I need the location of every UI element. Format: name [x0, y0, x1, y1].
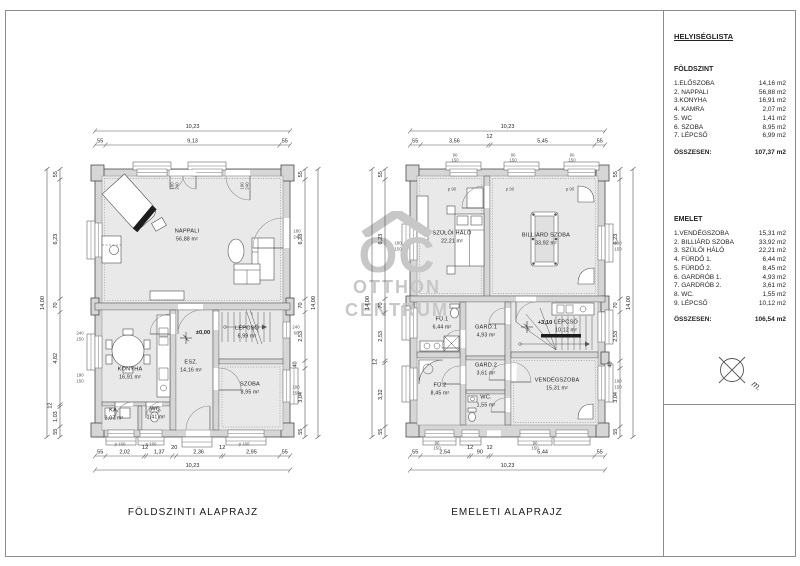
legend-row: 5. FÜRDŐ 2. 8,45 m2 [674, 265, 786, 274]
window-size-label: 240 [292, 325, 299, 330]
dimension-label: 14,00 [365, 296, 371, 310]
dimension-chain: 553,56125,4555 [408, 134, 607, 148]
dimension-label: 55 [412, 139, 418, 145]
window-size-label: 190 [76, 373, 83, 378]
legend-row-area: 33,92 m2 [759, 239, 786, 248]
level-marker-upper: +3,10 [538, 320, 553, 326]
dimension-chain: 559,1355 [93, 139, 292, 148]
legend-row-name: 1.VENDÉGSZOBA [674, 230, 729, 239]
window-size-label: 150 [394, 247, 401, 252]
legend-row-name: 8. WC. [674, 291, 694, 300]
room-label-szoba: SZOBA8,95 m² [240, 381, 260, 398]
room-label-esz: ESZ.14,16 m² [180, 359, 202, 376]
room-label-vendegszoba: VENDÉGSZOBA15,31 m² [535, 377, 580, 394]
legend-row-name: 5. FÜRDŐ 2. [674, 265, 712, 274]
legend-row: 6. GARDRÓB 1. 4,93 m2 [674, 274, 786, 283]
dimension-label: 55 [298, 429, 304, 435]
dimension-label: 55 [597, 139, 603, 145]
legend-row-area: 22,21 m2 [759, 247, 786, 256]
dimension-label: 4,82 [53, 353, 59, 364]
dimension-label: 3,32 [378, 389, 384, 400]
room-label-gardrob1: GARD.14,93 m² [475, 324, 497, 341]
window-size-label: 190 [394, 241, 401, 246]
legend-row-name: 6. SZOBA [674, 124, 703, 133]
legend-row-area: 6,44 m2 [763, 256, 787, 265]
dimension-label: 1,37 [154, 450, 165, 456]
legend-row: 4. KAMRA 2,07 m2 [674, 106, 786, 115]
legend-row: 9. LÉPCSŐ 10,12 m2 [674, 300, 786, 309]
room-label-konyha: KONYHA16,91 m² [118, 366, 143, 383]
dimension-total: 14,00 [365, 167, 375, 439]
parapet-label: p 160 [115, 442, 126, 447]
room-label-kamra: KA.2,07 m² [105, 407, 124, 424]
north-compass: m. [692, 336, 772, 401]
window-size-label: 150 [451, 158, 458, 163]
dimension-label: 10,23 [501, 124, 515, 130]
dimension-label: 6,23 [378, 234, 384, 245]
dimension-label: 10,23 [501, 463, 515, 469]
legend-row-area: 14,16 m2 [759, 80, 786, 89]
dimension-label: 2,53 [613, 331, 619, 342]
window-size-label: 150 [614, 247, 621, 252]
dimension-label: 2,53 [378, 331, 384, 342]
dimension-label: 14,00 [311, 296, 317, 310]
legend-rows: 1.ELŐSZOBA 14,16 m2 2. NAPPALI 56,88 m2 … [674, 80, 786, 141]
dimension-label: 2,36 [193, 450, 204, 456]
legend-heading: FÖLDSZINT [674, 66, 786, 73]
dimension-label: 55 [378, 429, 384, 435]
legend-row-name: 4. KAMRA [674, 106, 704, 115]
dimension-label: 20 [171, 445, 177, 451]
room-label-lepcso-ground: LÉPCSŐ6,99 m² [235, 325, 259, 342]
dimension-label: 9,13 [187, 139, 198, 145]
dimension-label: 10,23 [186, 124, 200, 130]
parapet-label: p 160 [146, 442, 157, 447]
legend-total-label: ÖSSZESEN: [674, 148, 712, 157]
dimension-label: 55 [97, 450, 103, 456]
legend-row-name: 4. FÜRDŐ 1. [674, 256, 712, 265]
door-size-label: 180 [293, 229, 300, 234]
room-label-szuloi-halo: SZÜLŐI HÁLÓ22,21 m² [432, 230, 471, 247]
window-size-label: 190 [614, 241, 621, 246]
room-label-gardrob2: GARD.23,61 m² [475, 362, 497, 379]
legend-row-name: 2. NAPPALI [674, 89, 708, 98]
dimension-label: 12 [487, 445, 493, 451]
dimension-label: 55 [412, 450, 418, 456]
legend-section-ground: FÖLDSZINT 1.ELŐSZOBA 14,16 m2 2. NAPPALI… [674, 66, 786, 157]
legend-row-area: 15,31 m2 [759, 230, 786, 239]
dimension-label: 2,02 [119, 450, 130, 456]
legend-row-area: 8,45 m2 [763, 265, 787, 274]
legend-row: 1.VENDÉGSZOBA 15,31 m2 [674, 230, 786, 239]
parapet-label: p 90 [448, 187, 456, 192]
dimension-label: 5,44 [537, 450, 548, 456]
legend-row-name: 5. WC [674, 115, 692, 124]
legend-heading: EMELET [674, 216, 786, 223]
legend-row-area: 8,95 m2 [763, 124, 787, 133]
dimension-label: 12 [373, 359, 379, 365]
dimension-chain: 556,23702,53123,3255 [373, 167, 388, 439]
parapet-label: p 90 [566, 187, 574, 192]
compass-label: m. [750, 379, 764, 393]
window-size-label: 150 [531, 446, 538, 451]
dimension-label: 3,56 [449, 139, 460, 145]
dimension-label: 70 [53, 302, 59, 308]
legend-total: ÖSSZESEN: 106,54 m2 [674, 315, 786, 324]
dimension-label: 12 [486, 134, 492, 140]
legend-row: 6. SZOBA 8,95 m2 [674, 124, 786, 133]
dimension-label: 90 [477, 450, 483, 456]
dimension-total: 10,23 [408, 463, 607, 473]
dimension-total: 10,23 [93, 463, 292, 473]
dimension-label: 14,00 [626, 296, 632, 310]
legend-total-label: ÖSSZESEN: [674, 315, 712, 324]
dimension-total: 14,00 [40, 167, 50, 439]
window-size-label: 150 [292, 391, 299, 396]
legend-rows: 1.VENDÉGSZOBA 15,31 m2 2. BILLIÁRD SZOBA… [674, 230, 786, 308]
dimension-chain: 556,23702,53403,0455 [293, 167, 308, 439]
dimension-label: 2,95 [246, 450, 257, 456]
dimension-label: 6,23 [53, 234, 59, 245]
window-size-label: 150 [509, 158, 516, 163]
legend-row-area: 3,61 m2 [763, 282, 787, 291]
window-size-label: 150 [76, 337, 83, 342]
window-size-label: 150 [433, 446, 440, 451]
dimension-label: 55 [298, 171, 304, 177]
legend-row: 1.ELŐSZOBA 14,16 m2 [674, 80, 786, 89]
dimension-label: 10,23 [186, 463, 200, 469]
door-size-label: 240 [245, 182, 250, 189]
dimension-chain: 552,02121,37202,36122,9555 [93, 445, 292, 459]
dimension-label: 55 [282, 450, 288, 456]
legend-row: 2. NAPPALI 56,88 m2 [674, 89, 786, 98]
dimension-label: 12 [48, 403, 54, 409]
dimension-label: 5,45 [537, 139, 548, 145]
legend-title: HELYISÉGLISTA [674, 32, 733, 41]
floor-plan-sheet: { "legend": { "title": "HELYISÉGLISTA", … [0, 0, 800, 566]
dimension-label: 40 [608, 361, 614, 367]
legend-row-area: 6,99 m2 [763, 132, 787, 141]
dimension-label: 2,54 [439, 450, 450, 456]
legend-row-area: 16,91 m2 [759, 97, 786, 106]
legend-row-name: 3.KONYHA [674, 97, 707, 106]
window-size-label: 150 [568, 158, 575, 163]
room-label-wc-ground: WC.1,41 m² [147, 406, 166, 423]
legend-row: 8. WC. 1,55 m2 [674, 291, 786, 300]
room-label-nappali: NAPPALI56,88 m² [175, 228, 200, 245]
parapet-label: p 90 [506, 187, 514, 192]
dimension-label: 55 [378, 171, 384, 177]
door-size-label: 240 [175, 182, 180, 189]
window-size-label: 60 [294, 331, 299, 336]
dimension-label: 2,53 [298, 331, 304, 342]
dimension-label: 12 [219, 445, 225, 451]
room-label-furdo2: FÜ.28,45 m² [431, 382, 450, 399]
window-size-label: 240 [76, 331, 83, 336]
dimension-label: 12 [467, 445, 473, 451]
legend-total-value: 106,54 m2 [755, 315, 786, 324]
legend-row-name: 3. SZÜLŐI HÁLÓ [674, 247, 724, 256]
legend-row: 5. WC 1,41 m2 [674, 115, 786, 124]
legend-row: 7. LÉPCSŐ 6,99 m2 [674, 132, 786, 141]
dimension-label: 1,03 [53, 411, 59, 422]
legend-row: 3.KONYHA 16,91 m2 [674, 97, 786, 106]
legend-row: 3. SZÜLŐI HÁLÓ 22,21 m2 [674, 247, 786, 256]
room-label-furdo1: FÜ.16,44 m² [433, 316, 452, 333]
room-label-billiard: BILLIÁRD SZOBA33,92 m² [522, 232, 570, 249]
dimension-label: 55 [97, 139, 103, 145]
room-label-wc-upper: WC.1,55 m² [477, 394, 496, 411]
level-marker-ground: ±0,00 [196, 330, 210, 336]
ground-plan-title: FÖLDSZINTI ALAPRAJZ [128, 507, 258, 518]
dimension-total: 10,23 [93, 124, 292, 134]
window-size-label: 190 [614, 379, 621, 384]
upper-plan-title: EMELETI ALAPRAJZ [451, 507, 563, 518]
dimension-label: 55 [282, 139, 288, 145]
dimension-label: 55 [613, 171, 619, 177]
room-list-panel: HELYISÉGLISTA FÖLDSZINT 1.ELŐSZOBA 14,16… [664, 10, 795, 405]
dimension-chain: 556,23702,53403,0455 [608, 167, 623, 439]
legend-total: ÖSSZESEN: 107,37 m2 [674, 148, 786, 157]
parapet-label: p 160 [239, 442, 250, 447]
legend-row-name: 1.ELŐSZOBA [674, 80, 714, 89]
legend-row-name: 7. GARDRÓB 2. [674, 282, 721, 291]
dimension-label: 55 [53, 429, 59, 435]
legend-row-area: 10,12 m2 [759, 300, 786, 309]
legend-row-area: 1,41 m2 [763, 115, 787, 124]
legend-row-area: 4,93 m2 [763, 274, 787, 283]
window-size-label: 150 [76, 379, 83, 384]
dimension-total: 14,00 [311, 167, 321, 439]
legend-row-area: 2,07 m2 [763, 106, 787, 115]
legend-row: 7. GARDRÓB 2. 3,61 m2 [674, 282, 786, 291]
dimension-label: 70 [613, 302, 619, 308]
legend-row-area: 1,55 m2 [763, 291, 787, 300]
legend-row-area: 56,88 m2 [759, 89, 786, 98]
room-label-lepcso-upper: LÉPCSŐ10,12 m² [554, 319, 578, 336]
legend-section-upper: EMELET 1.VENDÉGSZOBA 15,31 m2 2. BILLIÁR… [674, 216, 786, 324]
legend-row: 4. FÜRDŐ 1. 6,44 m2 [674, 256, 786, 265]
dimension-label: 55 [53, 171, 59, 177]
window-size-label: 150 [614, 385, 621, 390]
dimension-label: 55 [597, 450, 603, 456]
window-size-label: 190 [292, 385, 299, 390]
legend-row-name: 7. LÉPCSŐ [674, 132, 708, 141]
dimension-total: 10,23 [408, 124, 607, 134]
dimension-label: 40 [293, 361, 299, 367]
dimension-total: 14,00 [626, 167, 636, 439]
dimension-label: 70 [378, 302, 384, 308]
legend-row-name: 9. LÉPCSŐ [674, 300, 708, 309]
dimension-label: 70 [298, 302, 304, 308]
dimension-label: 14,00 [40, 296, 46, 310]
dimension-label: 55 [613, 429, 619, 435]
legend-total-value: 107,37 m2 [755, 148, 786, 157]
dimension-label: 3,04 [613, 392, 619, 403]
door-size-label: 240 [293, 235, 300, 240]
dimension-chain: 556,23704,82121,0355 [48, 167, 63, 439]
legend-row-name: 6. GARDRÓB 1. [674, 274, 721, 283]
